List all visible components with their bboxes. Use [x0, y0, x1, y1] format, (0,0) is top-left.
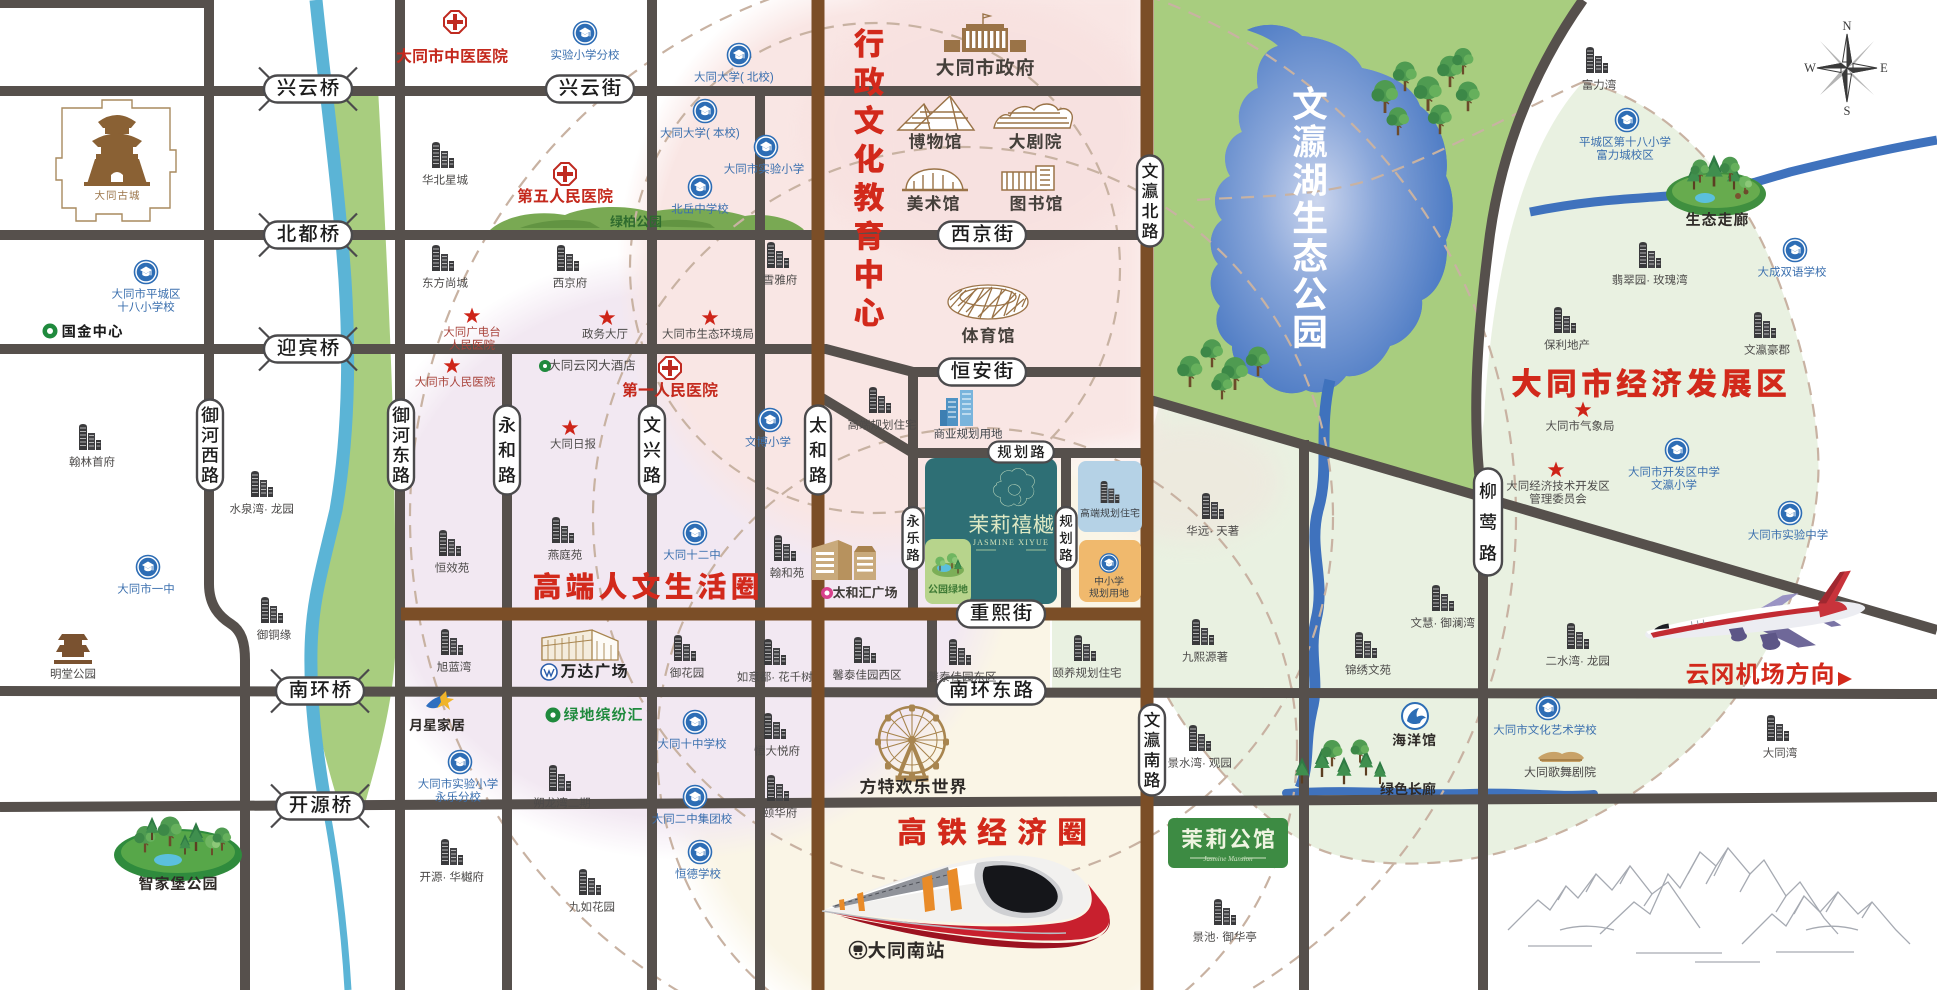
svg-text:·: ·: [1216, 932, 1220, 944]
svg-text:W: W: [1804, 61, 1816, 75]
svg-text:(: (: [706, 128, 710, 140]
svg-text:N: N: [1842, 19, 1851, 33]
svg-text:·: ·: [1646, 275, 1650, 287]
svg-text:·: ·: [1209, 526, 1213, 538]
svg-text:): ): [770, 72, 774, 84]
svg-text:·: ·: [264, 504, 268, 516]
svg-text:E: E: [1880, 61, 1888, 75]
svg-text:·: ·: [1434, 618, 1438, 630]
svg-text:·: ·: [443, 872, 447, 884]
svg-text:·: ·: [771, 672, 775, 684]
svg-text:·: ·: [1202, 758, 1206, 770]
svg-text:): ): [736, 128, 740, 140]
svg-text:Jasmine Mansion: Jasmine Mansion: [1203, 855, 1253, 863]
svg-text:·: ·: [1580, 656, 1584, 668]
svg-text:(: (: [740, 72, 744, 84]
svg-text:S: S: [1844, 104, 1851, 118]
svg-text:JASMINE XIYUE: JASMINE XIYUE: [973, 538, 1049, 547]
